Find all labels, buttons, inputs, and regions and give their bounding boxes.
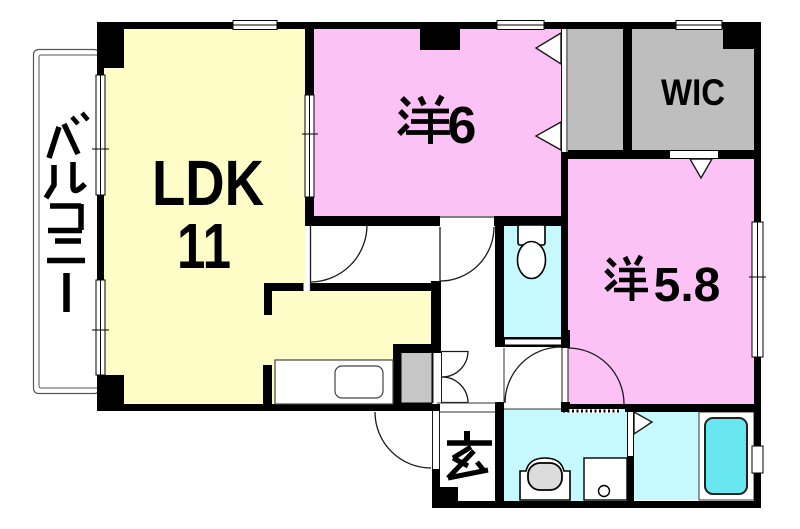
svg-text:WIC: WIC [661,72,725,113]
svg-text:LDK: LDK [152,147,264,219]
svg-text:5.8: 5.8 [654,259,721,312]
svg-text:11: 11 [177,210,231,282]
svg-text:6: 6 [448,97,477,155]
